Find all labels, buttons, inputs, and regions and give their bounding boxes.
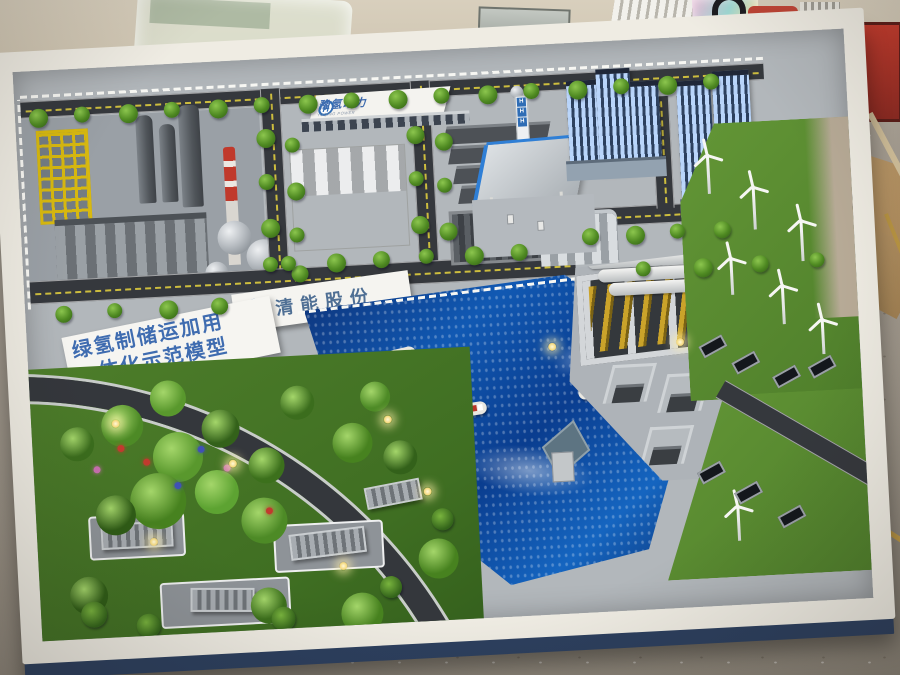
tree-icon [107, 303, 123, 319]
garden-bush [382, 440, 418, 476]
compressor-skid [603, 363, 657, 404]
fuel-dispenser [507, 214, 515, 224]
tree-icon [434, 132, 453, 151]
landscaped-garden [28, 347, 484, 642]
garden-bush [418, 538, 460, 580]
scale-model-table: H 豫氢动力 YUQING POWER H H H [0, 8, 895, 665]
tree-icon [433, 87, 450, 104]
station-totem-sign: H H H [515, 95, 530, 144]
compressor-skid [640, 425, 694, 466]
totem-letter: H [518, 117, 527, 126]
solar-pergola [191, 588, 255, 612]
water-platform-house [551, 451, 575, 482]
totem-letter: H [517, 97, 526, 106]
garden-bush [359, 381, 391, 413]
workshop-photo-scene: UHU [0, 0, 900, 675]
fuel-dispenser [537, 221, 545, 231]
tree-icon [55, 305, 73, 323]
bench-rack [364, 478, 423, 510]
electrolyzer-hall [289, 144, 410, 252]
garden-bush [279, 385, 315, 421]
tree-icon [658, 75, 678, 95]
totem-letter: H [517, 107, 526, 116]
tree-icon [478, 85, 498, 105]
tree-icon [523, 83, 540, 100]
yellow-crane-tower [36, 128, 93, 225]
tree-icon [626, 225, 646, 245]
tree-icon [437, 177, 453, 193]
station-pad [472, 194, 597, 258]
tower-podium [566, 156, 667, 181]
model-terrain: H 豫氢动力 YUQING POWER H H H [13, 29, 874, 642]
sandy-edge [804, 116, 858, 318]
garden-bush [331, 422, 373, 464]
palm-tree-icon [431, 508, 454, 531]
